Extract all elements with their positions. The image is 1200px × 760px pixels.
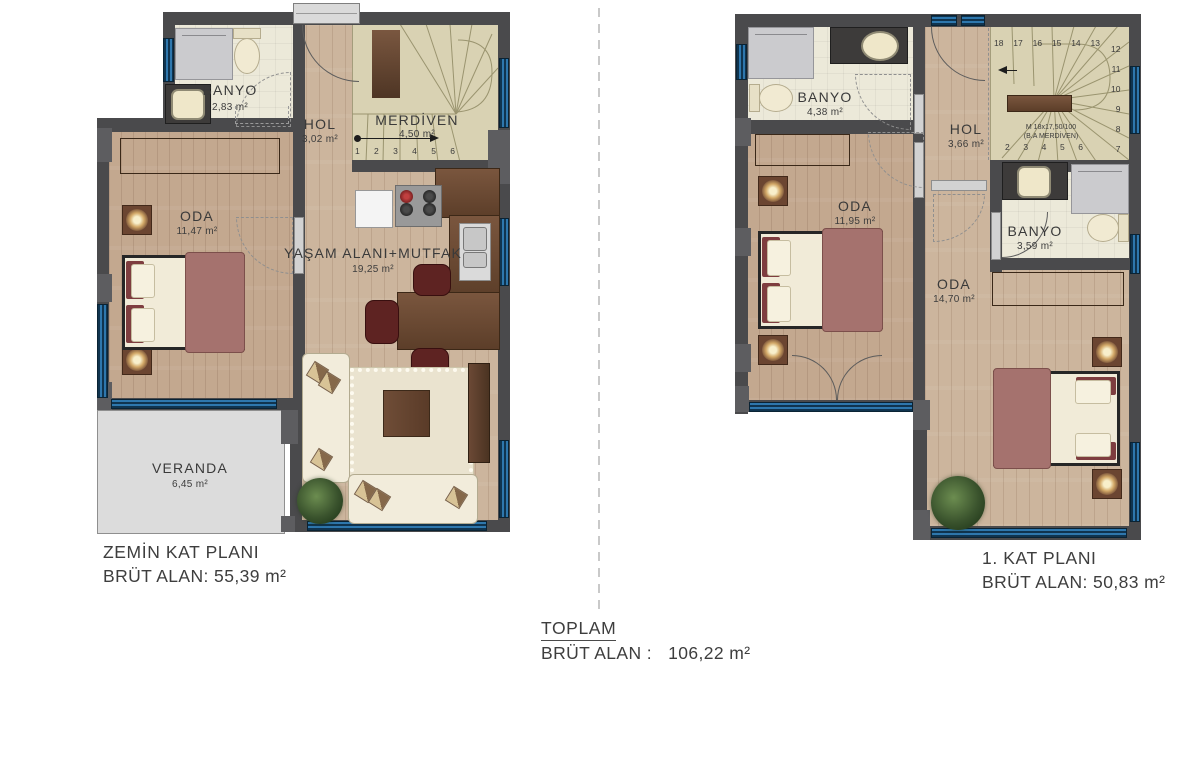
door-frame <box>931 180 987 191</box>
bed-pillow <box>131 308 155 342</box>
stair-spec-line1: M 18x17,50/100 <box>1026 124 1076 131</box>
wardrobe <box>992 272 1124 306</box>
nightstand-lamp <box>758 335 788 365</box>
bed-pillow <box>1075 380 1111 404</box>
total-title-text: TOPLAM <box>541 618 616 641</box>
room-label-hol: HOL <box>304 116 336 132</box>
step-number: 14 <box>1071 38 1080 48</box>
door-frame <box>991 212 1001 260</box>
total-area-label: BRÜT ALAN : <box>541 643 652 663</box>
room-label-banyo-orta: BANYO <box>1007 223 1062 239</box>
first-floor-title: 1. KAT PLANI <box>982 548 1097 569</box>
window <box>1130 234 1140 274</box>
shower-tray <box>175 28 233 80</box>
wall-pier <box>97 128 112 162</box>
room-label-oda: ODA <box>180 208 214 224</box>
toilet-tank <box>1118 214 1129 242</box>
stair-direction-arrow <box>1001 70 1017 71</box>
room-area-hol: 3,66 m² <box>948 139 984 150</box>
sofa-pillow <box>445 486 468 509</box>
sofa <box>302 353 350 483</box>
stair-numbers-bottom: 2 3 4 5 6 <box>1005 142 1083 152</box>
wall-pier <box>913 510 930 540</box>
nightstand-lamp <box>122 205 152 235</box>
wall <box>990 258 1129 270</box>
window <box>931 15 957 26</box>
room-area-yasam: 19,25 m² <box>352 264 394 275</box>
nightstand-lamp <box>1092 469 1122 499</box>
step-number: 5 <box>431 146 436 156</box>
veranda-corner-post <box>281 410 298 444</box>
stair-numbers-right: 12 11 10 9 8 7 <box>1111 44 1120 154</box>
room-area-hol: 3,02 m² <box>302 134 338 145</box>
step-number: 2 <box>374 146 379 156</box>
french-door <box>749 402 913 412</box>
step-number: 10 <box>1111 84 1120 94</box>
step-number: 5 <box>1060 142 1065 152</box>
fridge <box>355 190 393 228</box>
step-number: 18 <box>994 38 1003 48</box>
double-bed <box>993 371 1120 466</box>
room-area-oda-alt: 14,70 m² <box>933 294 975 305</box>
window <box>499 58 509 128</box>
window <box>97 304 108 398</box>
total-title: TOPLAM <box>541 618 616 641</box>
step-number: 4 <box>1042 142 1047 152</box>
tv-unit <box>468 363 490 463</box>
step-number: 12 <box>1111 44 1120 54</box>
step-number: 1 <box>355 146 360 156</box>
room-label-veranda: VERANDA <box>152 460 228 476</box>
room-label-yasam: YAŞAM ALANI+MUTFAK <box>284 245 462 261</box>
veranda-corner-post <box>281 516 295 532</box>
stair-spec-line2: (B.A MERDİVEN) <box>1024 133 1078 140</box>
bathroom-sink <box>861 31 899 61</box>
ground-floor-area: BRÜT ALAN: 55,39 m² <box>103 566 286 587</box>
step-number: 7 <box>1116 144 1121 154</box>
double-bed <box>758 231 883 329</box>
room-label-hol: HOL <box>950 121 982 137</box>
wardrobe <box>120 138 280 174</box>
dining-chair <box>413 264 451 296</box>
step-number: 16 <box>1033 38 1042 48</box>
stove-burner <box>400 190 413 203</box>
room-area-banyo-ust: 4,38 m² <box>807 107 843 118</box>
wall-pier <box>735 118 751 146</box>
toilet-bowl <box>759 84 793 112</box>
wall-pier <box>97 274 112 302</box>
wall-pier <box>735 228 751 256</box>
door-frame <box>914 94 924 134</box>
bathroom-sink <box>171 89 205 120</box>
first-floor-area: BRÜT ALAN: 50,83 m² <box>982 572 1165 593</box>
room-label-oda-sol: ODA <box>838 198 872 214</box>
stair-step-numbers: 1 2 3 4 5 6 <box>355 146 455 156</box>
step-number: 8 <box>1116 124 1121 134</box>
plan-divider <box>598 8 600 612</box>
room-area-banyo-orta: 3,59 m² <box>1017 241 1053 252</box>
kitchen-sink <box>459 223 491 281</box>
stove <box>395 185 442 227</box>
window <box>1130 442 1140 522</box>
room-label-oda-alt: ODA <box>937 276 971 292</box>
shower-tray <box>1071 164 1129 214</box>
step-number: 3 <box>393 146 398 156</box>
entry-door <box>293 3 360 24</box>
plant <box>297 478 343 524</box>
stove-burner <box>423 190 436 203</box>
wall-pier <box>735 344 751 372</box>
window <box>736 44 747 80</box>
stair-landing <box>1007 95 1072 112</box>
window <box>1130 66 1140 134</box>
dining-chair <box>365 300 399 344</box>
bed-pillow <box>767 286 791 322</box>
step-number: 2 <box>1005 142 1010 152</box>
bed-pillow <box>767 240 791 276</box>
step-number: 6 <box>450 146 455 156</box>
step-number: 11 <box>1112 64 1121 74</box>
sink-basin <box>463 227 487 251</box>
nightstand-lamp <box>1092 337 1122 367</box>
window <box>163 38 174 82</box>
room-area-oda: 11,47 m² <box>176 226 217 237</box>
ground-floor-plan: 1 2 3 4 5 6 <box>97 12 510 540</box>
stair-railing <box>988 28 989 160</box>
wall <box>913 14 925 414</box>
stair-closet <box>372 30 400 98</box>
window <box>961 15 985 26</box>
step-number: 4 <box>412 146 417 156</box>
bed-pillow <box>1075 433 1111 457</box>
kitchen-counter <box>435 168 500 218</box>
stove-burner <box>423 203 436 216</box>
double-bed <box>122 255 245 350</box>
bed-blanket <box>822 228 884 332</box>
bed-blanket <box>993 368 1051 469</box>
room-label-merdiven: MERDİVEN <box>375 112 459 128</box>
step-number: 15 <box>1052 38 1061 48</box>
room-area-merdiven: 4,50 m² <box>399 129 435 140</box>
room-label-banyo: BANYO <box>202 82 257 98</box>
bathroom-sink <box>1017 166 1051 198</box>
total-area-value: 106,22 m² <box>668 643 750 663</box>
nightstand-lamp <box>758 176 788 206</box>
room-area-veranda: 6,45 m² <box>172 479 208 490</box>
dining-table <box>397 292 500 350</box>
room-area-oda-sol: 11,95 m² <box>834 216 875 227</box>
ground-floor-title: ZEMİN KAT PLANI <box>103 542 259 563</box>
step-number: 6 <box>1078 142 1083 152</box>
coffee-table <box>383 390 430 437</box>
sofa <box>348 474 478 524</box>
sink-basin <box>463 252 487 268</box>
first-floor-plan: 18 17 16 15 14 13 12 11 10 9 8 7 2 3 4 5… <box>735 14 1141 540</box>
toilet-bowl <box>1087 214 1119 242</box>
step-number: 9 <box>1116 104 1121 114</box>
total-area-line: BRÜT ALAN :106,22 m² <box>541 643 750 664</box>
bed-pillow <box>131 264 155 298</box>
room-label-banyo-ust: BANYO <box>797 89 852 105</box>
sofa-pillow <box>310 448 333 471</box>
window <box>499 440 509 518</box>
shower-tray <box>748 27 814 79</box>
plant <box>931 476 985 530</box>
toilet-bowl <box>234 38 260 74</box>
room-area-banyo: 2,83 m² <box>212 102 248 113</box>
wall-pier <box>735 386 749 412</box>
step-number: 3 <box>1023 142 1028 152</box>
wall-pier <box>913 400 930 430</box>
floorplan-canvas: 1 2 3 4 5 6 <box>0 0 1200 760</box>
stove-burner <box>400 203 413 216</box>
step-number: 17 <box>1013 38 1022 48</box>
step-number: 13 <box>1090 38 1099 48</box>
window <box>499 218 509 286</box>
wardrobe <box>755 134 850 166</box>
window <box>111 399 277 409</box>
bed-blanket <box>185 252 246 353</box>
stair-numbers-top: 18 17 16 15 14 13 <box>994 38 1100 48</box>
